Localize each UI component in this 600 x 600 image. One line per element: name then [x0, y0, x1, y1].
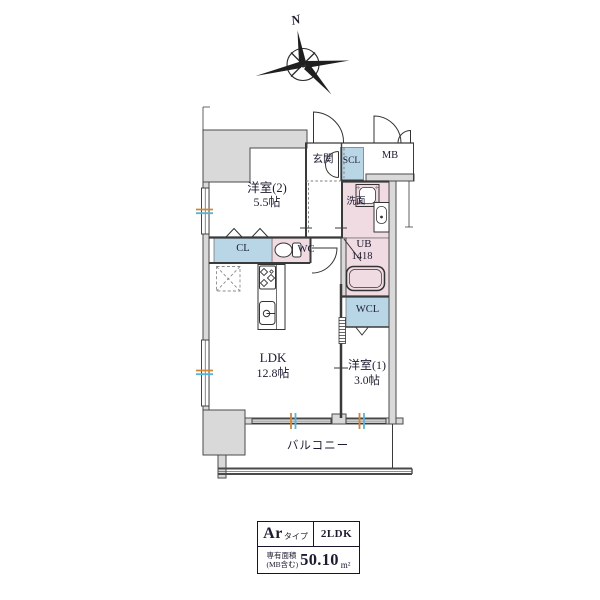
room-label-balcony: バルコニー	[279, 440, 357, 453]
cl-folding-doors	[226, 229, 268, 238]
unit-area-row: 専有面積 (MB含む) 50.10 m²	[258, 547, 359, 573]
stove-icon	[260, 266, 276, 289]
balcony-railing	[218, 469, 412, 475]
compass-icon	[256, 31, 350, 95]
unit-type-row: Ar タイプ 2LDK	[258, 522, 359, 547]
room-label-genkan: 玄関	[307, 154, 339, 166]
room-label-cl: CL	[214, 243, 272, 255]
unit-type-value: Ar	[263, 525, 283, 543]
unit-area-label-line1: 専有面積	[267, 551, 299, 560]
unit-type-cell: Ar タイプ	[258, 522, 314, 546]
room-size-ldk: 12.8帖	[241, 367, 305, 381]
entrance-door-swing	[314, 112, 344, 143]
pipe-space-hatch	[339, 318, 346, 344]
room-label-mb: MB	[377, 150, 403, 162]
room-label-senmen: 洗面	[343, 197, 369, 208]
unit-type-suffix: タイプ	[284, 531, 308, 542]
floorplan-page: N 玄関 SCL MB 洋室(2) 5.5帖 洗面 CL WC UB 1418 …	[0, 0, 600, 600]
unit-info-table: Ar タイプ 2LDK 専有面積 (MB含む) 50.10 m²	[257, 521, 360, 574]
room-label-wc: WC	[295, 244, 317, 256]
unit-area-unit: m²	[341, 560, 351, 570]
room-size-yoshitsu2: 5.5帖	[231, 196, 303, 210]
room-label-ub: UB	[350, 238, 378, 251]
room-size-yoshitsu1: 3.0帖	[337, 375, 397, 388]
kitchen-counter	[258, 265, 285, 330]
unit-layout-cell: 2LDK	[314, 522, 359, 546]
neighbor-door-swing-small	[398, 131, 411, 144]
neighbor-door-swing-large	[374, 116, 401, 143]
room-label-ldk: LDK	[241, 351, 305, 366]
wcl-folding-door	[356, 328, 368, 336]
unit-area-label: 専有面積 (MB含む)	[267, 551, 299, 570]
vanity-icon	[374, 203, 389, 233]
room-label-yoshitsu1: 洋室(1)	[337, 359, 397, 373]
unit-area-value: 50.10	[300, 550, 339, 570]
floorplan-drawing	[0, 0, 600, 600]
room-size-ub: 1418	[346, 251, 378, 263]
unit-area-label-line2: (MB含む)	[267, 560, 299, 569]
room-label-scl: SCL	[340, 156, 363, 167]
sink-icon	[260, 302, 276, 325]
room-label-yoshitsu2: 洋室(2)	[231, 181, 303, 195]
refrigerator-space	[217, 267, 241, 292]
room-label-wcl: WCL	[346, 304, 389, 316]
